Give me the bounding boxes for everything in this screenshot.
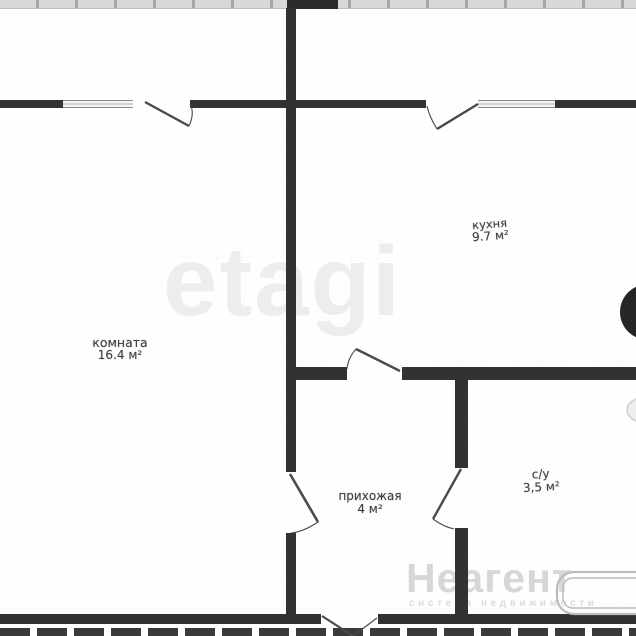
door-swing-bathroom: [433, 469, 461, 529]
doors-and-fixtures-layer: [0, 0, 636, 636]
floorplan: etagi Неагент система недвижимости: [0, 0, 636, 636]
room-label-komnata: комната 16.4 м²: [72, 336, 168, 362]
bathtub-icon: [557, 572, 636, 614]
room-label-prihozhaya: прихожая 4 м²: [329, 490, 411, 516]
column-marker-icon: [620, 284, 636, 340]
sink-icon: [627, 398, 636, 422]
room-label-su: с/у 3,5 м²: [511, 467, 570, 496]
door-swing-room: [290, 474, 318, 533]
room-area: 4 м²: [329, 503, 411, 516]
room-label-kuhnya: кухня 9.7 м²: [457, 216, 523, 244]
door-swing-kitchen: [347, 349, 400, 371]
door-swing-balcony-kitchen: [427, 104, 478, 129]
door-swing-balcony-room: [145, 102, 192, 126]
door-swing-entrance: [322, 616, 377, 636]
room-area: 16.4 м²: [72, 349, 168, 362]
